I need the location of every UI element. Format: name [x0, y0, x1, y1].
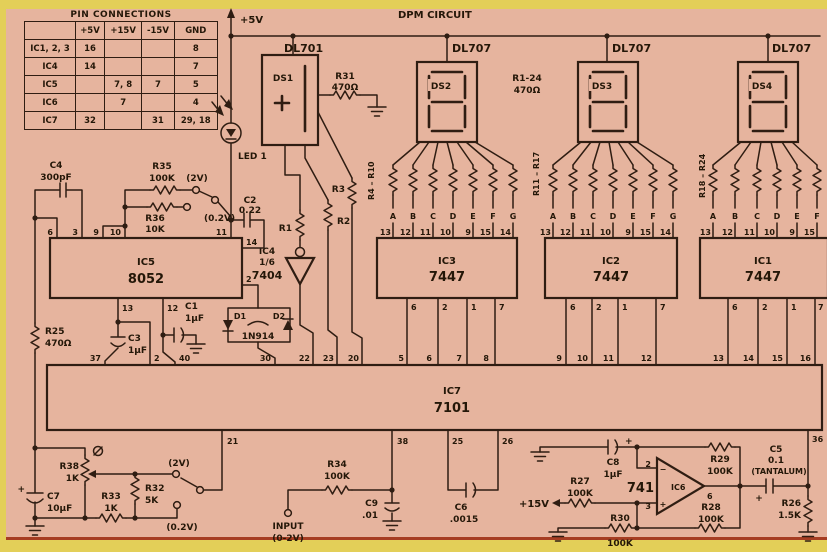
label-r26: R26: [782, 499, 801, 509]
opamp-inverting-mark: −: [660, 465, 667, 474]
decoder-ic2: IC2 7447 13 12 11 10 9 15 14 6 2 1 7: [540, 228, 677, 365]
pin-number: 2: [442, 303, 448, 312]
label-d2: D2: [273, 312, 285, 321]
switch2-contact-0p2v: [174, 502, 181, 509]
label-input-range: (0-2V): [272, 534, 303, 544]
ground-icon: [531, 452, 549, 461]
table-row: IC4 14 7: [25, 58, 218, 76]
pin-number: 6: [426, 354, 432, 363]
cell: 14: [76, 58, 105, 76]
label-r3: R3: [332, 185, 345, 195]
opamp-noninverting-mark: +: [660, 500, 667, 509]
segment-letter: G: [670, 212, 677, 221]
label-r2: R2: [337, 217, 350, 227]
label-7101: 7101: [434, 401, 470, 416]
pin-number: 6: [570, 303, 576, 312]
pin-number: 12: [560, 228, 571, 237]
pin-number: 23: [323, 354, 334, 363]
decoder-ic3: IC3 7447 13 12 11 10 9 15 14 6 2 1 7: [377, 228, 517, 365]
label-c1: C1: [185, 302, 198, 312]
segment-letter: A: [550, 212, 557, 221]
segment-letter: F: [650, 212, 655, 221]
input-terminal: [285, 510, 292, 517]
ground-icon: [799, 532, 817, 541]
label-r36-value: 10K: [145, 225, 166, 235]
label-1n914: 1N914: [242, 332, 275, 342]
label-7447: 7447: [429, 270, 465, 285]
label-c7-value: 10µF: [47, 504, 72, 514]
cell: [76, 76, 105, 94]
pin-number: 10: [440, 228, 452, 237]
pin-number: 11: [744, 228, 756, 237]
label-7447: 7447: [745, 270, 781, 285]
label-r34: R34: [327, 460, 346, 470]
range-network: R35 100K (2V) R36 10K (0.2V): [103, 162, 235, 238]
cell: 4: [174, 94, 217, 112]
label-r36: R36: [145, 214, 164, 224]
pin-number: 13: [380, 228, 391, 237]
label-r26-value: 1.5K: [778, 511, 802, 521]
label-c1-value: 1µF: [185, 314, 204, 324]
segment-letter: E: [630, 212, 635, 221]
label-r31-value: 470Ω: [332, 83, 359, 93]
cell: [142, 94, 174, 112]
pin-number: 11: [216, 228, 228, 237]
row-name: IC1, 2, 3: [25, 40, 76, 58]
pin-number: 25: [452, 437, 464, 446]
label-c9: C9: [365, 499, 378, 509]
pin-number: 26: [502, 437, 514, 446]
schematic-page: DPM CIRCUIT +5V LED 1 DL701: [0, 0, 827, 552]
label-ic7: IC7: [443, 386, 461, 397]
label-8052: 8052: [128, 272, 164, 287]
pin-number: 1: [471, 303, 477, 312]
label-c5-value: 0.1: [768, 456, 784, 466]
cell: 31: [142, 112, 174, 130]
label-r38-value: 1K: [66, 474, 80, 484]
label-c5-type: (TANTALUM): [751, 467, 806, 476]
pin-number: 6: [47, 228, 53, 237]
label-ds1: DS1: [273, 74, 293, 84]
pin-number: 6: [707, 492, 713, 501]
col-header: +15V: [105, 22, 142, 40]
pin-number: 7: [818, 303, 824, 312]
decoder-ic1: IC1 7447 13 12 11 10 9 15 6 2 1 7: [700, 228, 827, 365]
pin-number: 12: [167, 304, 178, 313]
up-arrow-icon: [227, 8, 235, 18]
pin-number: 14: [660, 228, 672, 237]
pin-number: 1: [791, 303, 797, 312]
segment-resistors-ds4: A B C D E F R18 – R24: [698, 153, 821, 238]
pin-number: 13: [700, 228, 711, 237]
pin-number: 9: [789, 228, 795, 237]
row-name: IC6: [25, 94, 76, 112]
pin-number: 15: [480, 228, 492, 237]
segment-letter: B: [410, 212, 416, 221]
pin-number: 15: [772, 354, 784, 363]
cell: 16: [76, 40, 105, 58]
label-c6: C6: [455, 503, 468, 513]
ground-icon: [549, 532, 567, 541]
pin-number: 2: [645, 460, 651, 469]
label-c2-value: 0.22: [239, 206, 261, 216]
label-plus5v: +5V: [240, 15, 263, 26]
pin-number: 9: [465, 228, 471, 237]
label-input: INPUT: [273, 522, 305, 532]
segment-letter: D: [610, 212, 617, 221]
label-r27: R27: [570, 477, 589, 487]
label-c8: C8: [607, 458, 620, 468]
label-r18-r24: R18 – R24: [698, 153, 707, 198]
cell: 7: [174, 58, 217, 76]
ground-icon: [187, 344, 205, 353]
switch2-common: [197, 487, 204, 494]
label-r25: R25: [45, 327, 64, 337]
label-r34-value: 100K: [324, 472, 351, 482]
table-row: IC6 7 4: [25, 94, 218, 112]
cell: 29, 18: [174, 112, 217, 130]
pin-table-title: PIN CONNECTIONS: [24, 8, 218, 21]
pin-number: 30: [260, 354, 272, 363]
row-name: IC4: [25, 58, 76, 76]
segment-letter: C: [430, 212, 436, 221]
pin-number: 14: [246, 238, 258, 247]
row-name: IC7: [25, 112, 76, 130]
segment-letter: C: [754, 212, 760, 221]
label-c6-value: .0015: [450, 515, 478, 525]
segment-letter: F: [490, 212, 495, 221]
cell: 8: [174, 40, 217, 58]
pin-number: 3: [645, 502, 651, 511]
pin-number: 7: [499, 303, 505, 312]
pin-number: 8: [483, 354, 489, 363]
pin-number: 16: [800, 354, 812, 363]
label-dl707: DL707: [452, 42, 491, 55]
label-ic2: IC2: [602, 256, 620, 267]
polarity-plus: +: [625, 437, 633, 447]
label-ic6: IC6: [671, 483, 686, 492]
pin-number: 2: [246, 275, 252, 284]
opamp-network: + C8 1µF R29 100K R27 100K +15V R30 100K…: [519, 430, 817, 549]
pin-number: 6: [732, 303, 738, 312]
col-header: +5V: [76, 22, 105, 40]
label-r38: R38: [60, 462, 79, 472]
pin-number: 6: [411, 303, 417, 312]
label-ic1: IC1: [754, 256, 772, 267]
ic5-8052: IC5 8052 6 3 9 10 11 13 12 14 2: [47, 228, 258, 313]
pin-number: 2: [154, 354, 160, 363]
cell: 32: [76, 112, 105, 130]
pin-number: 13: [713, 354, 724, 363]
pin-number: 9: [93, 228, 99, 237]
pin-number: 13: [122, 304, 133, 313]
corner-cell: [25, 22, 76, 40]
inverter-triangle-icon: [286, 258, 314, 284]
label-2v: (2V): [186, 174, 207, 184]
pin-number: 1: [622, 303, 628, 312]
ground-icon: [26, 526, 44, 535]
display-ds2: DL707 DS2: [393, 42, 513, 165]
label-led1: LED 1: [238, 152, 267, 162]
label-r33-value: 1K: [104, 504, 118, 514]
pin-number: 10: [764, 228, 776, 237]
polarity-plus: +: [17, 485, 25, 495]
label-r1: R1: [279, 224, 292, 234]
cell: 7: [105, 94, 142, 112]
label-r31: R31: [335, 72, 354, 82]
pin-number: 12: [400, 228, 411, 237]
label-r32-value: 5K: [145, 496, 159, 506]
segment-resistors-ds2: A B C D E F G R4 – R10: [367, 161, 517, 238]
label-7404: 7404: [252, 269, 283, 282]
table-header-row: +5V +15V -15V GND: [25, 22, 218, 40]
label-ic3: IC3: [438, 256, 456, 267]
table-row: IC1, 2, 3 16 8: [25, 40, 218, 58]
segment-letter: F: [814, 212, 819, 221]
led1: LED 1: [212, 36, 267, 220]
pin-connections-table: PIN CONNECTIONS +5V +15V -15V GND IC1, 2…: [24, 8, 218, 130]
pin-number: 14: [500, 228, 512, 237]
label-c4-value: 300pF: [40, 173, 71, 183]
label-ds3: DS3: [592, 82, 612, 92]
cell: [105, 40, 142, 58]
diodes-1n914: D1 D2 1N914: [223, 308, 293, 365]
label-c3-value: 1µF: [128, 346, 147, 356]
cell: 7, 8: [105, 76, 142, 94]
label-c8-value: 1µF: [603, 470, 622, 480]
polarity-plus: +: [755, 494, 763, 504]
display-ds3: DL707 DS3: [553, 42, 673, 165]
label-r25-value: 470Ω: [45, 339, 72, 349]
input-network: R34 100K C9 .01 INPUT (0-2V): [272, 430, 401, 544]
pin-number: 40: [179, 354, 191, 363]
segment-letter: E: [470, 212, 475, 221]
pin-number: 11: [420, 228, 432, 237]
label-r1-24: R1-24: [512, 74, 541, 84]
label-r35-value: 100K: [149, 174, 176, 184]
pin-number: 10: [577, 354, 589, 363]
col-header: -15V: [142, 22, 174, 40]
pin-number: 5: [398, 354, 404, 363]
label-r30-value: 100K: [607, 539, 634, 549]
pin-number: 2: [762, 303, 768, 312]
pin-number: 7: [660, 303, 666, 312]
adc-ic7: IC7 7101 37 2 40 30 22 23 20 5 6 7 8 9 1…: [47, 354, 824, 446]
label-r11-r17: R11 – R17: [532, 152, 541, 196]
ground-icon: [368, 107, 386, 116]
pin-number: 11: [603, 354, 615, 363]
label-dl707: DL707: [612, 42, 651, 55]
segment-letter: D: [450, 212, 457, 221]
label-r1-24-value: 470Ω: [514, 86, 541, 96]
label-dl701: DL701: [284, 42, 323, 55]
switch-contact-0p2v: [184, 204, 191, 211]
schematic-title: DPM CIRCUIT: [398, 10, 472, 21]
label-ds4: DS4: [752, 82, 772, 92]
pin-number: 12: [641, 354, 652, 363]
label-c5: C5: [770, 445, 783, 455]
zero-adjust-network: R38 1K R33 1K R32 5K (2V) (0.2V): [32, 430, 222, 533]
label-r29-value: 100K: [707, 467, 734, 477]
table-row: IC7 32 31 29, 18: [25, 112, 218, 130]
label-r27-value: 100K: [567, 489, 594, 499]
segment-letter: C: [590, 212, 596, 221]
segment-letter: A: [390, 212, 397, 221]
label-c3: C3: [128, 334, 141, 344]
label-r29: R29: [710, 455, 729, 465]
pin-number: 38: [397, 437, 409, 446]
label-r4-r10: R4 – R10: [367, 161, 376, 200]
label-dl707: DL707: [772, 42, 811, 55]
pin-number: 7: [456, 354, 462, 363]
resistor-r31: R31 470Ω: [318, 72, 386, 116]
pin-number: 9: [556, 354, 562, 363]
pin-number: 15: [804, 228, 816, 237]
pin-number: 21: [227, 437, 239, 446]
label-c7: C7: [47, 492, 60, 502]
pin-number: 2: [596, 303, 602, 312]
label-7447: 7447: [593, 270, 629, 285]
label-r35: R35: [152, 162, 171, 172]
cell: [142, 40, 174, 58]
segment-letter: E: [794, 212, 799, 221]
pin-number: 9: [625, 228, 631, 237]
col-header: GND: [174, 22, 217, 40]
left-arrow-icon: [552, 499, 560, 507]
label-r30: R30: [610, 514, 629, 524]
table-row: IC5 7, 8 7 5: [25, 76, 218, 94]
pin-number: 12: [722, 228, 733, 237]
label-c4: C4: [50, 161, 63, 171]
pin-number: 15: [640, 228, 652, 237]
ground-icon: [383, 521, 401, 530]
wiper-arrow-icon: [88, 470, 96, 478]
pin-number: 13: [540, 228, 551, 237]
label-2v: (2V): [168, 459, 189, 469]
cell: [142, 58, 174, 76]
cell: [105, 112, 142, 130]
label-d1: D1: [234, 312, 247, 321]
pin-number: 36: [812, 435, 824, 444]
cell: 5: [174, 76, 217, 94]
label-c2: C2: [244, 196, 257, 206]
pin-number: 11: [580, 228, 592, 237]
inverter-bubble-icon: [296, 248, 305, 257]
label-r33: R33: [101, 492, 120, 502]
segment-letter: B: [732, 212, 738, 221]
segment-letter: G: [510, 212, 517, 221]
label-c9-value: .01: [362, 511, 378, 521]
label-ds2: DS2: [431, 82, 451, 92]
label-plus15v: +15V: [519, 499, 549, 510]
pin-number: 22: [299, 354, 310, 363]
label-r28-value: 100K: [698, 515, 725, 525]
label-ic4-fraction: 1/6: [259, 258, 275, 268]
label-741: 741: [627, 481, 654, 496]
segment-letter: A: [710, 212, 717, 221]
label-r32: R32: [145, 484, 164, 494]
row-name: IC5: [25, 76, 76, 94]
switch-common: [212, 197, 219, 204]
cell: [76, 94, 105, 112]
pin-number: 10: [110, 228, 122, 237]
pin-number: 14: [743, 354, 755, 363]
cell: 7: [142, 76, 174, 94]
pin-number: 37: [90, 354, 101, 363]
pin-number: 3: [72, 228, 78, 237]
label-r28: R28: [701, 503, 720, 513]
label-0p2v: (0.2V): [166, 523, 197, 533]
pin-number: 10: [600, 228, 612, 237]
switch2-contact-2v: [173, 471, 180, 478]
segment-letter: D: [774, 212, 781, 221]
label-ic5: IC5: [137, 257, 155, 268]
pin-number: 20: [348, 354, 360, 363]
display-ds4: DL707 DS4: [713, 42, 817, 165]
switch-contact-2v: [193, 187, 200, 194]
segment-letter: B: [570, 212, 576, 221]
cell: [105, 58, 142, 76]
